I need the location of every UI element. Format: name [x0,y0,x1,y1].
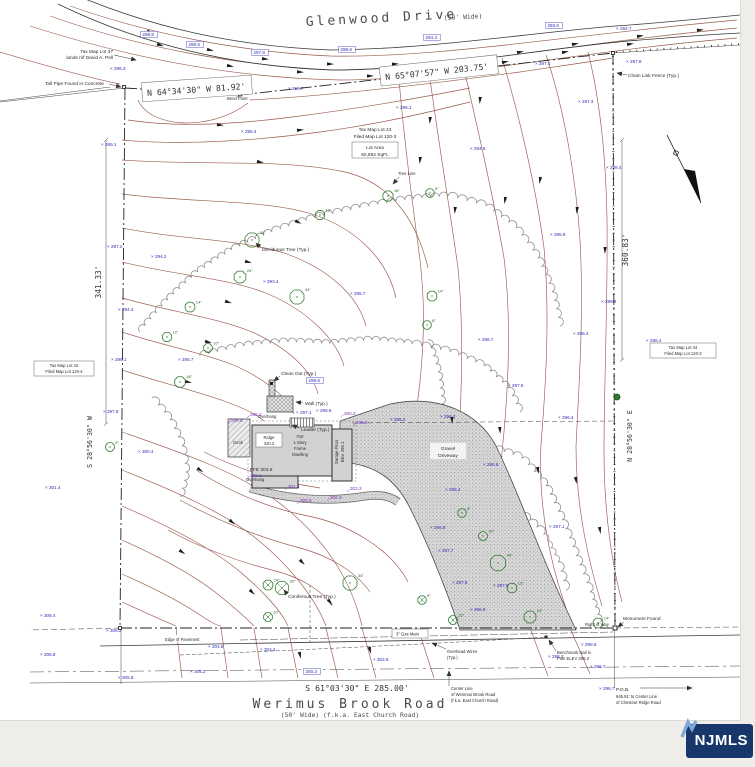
deciduous-tree-symbol: 18" [175,374,193,388]
svg-text:1 Story: 1 Story [293,440,307,445]
page: 298.8298.6297.8298.6294.3293.6× 294.7× 2… [0,0,755,767]
spot-value: × 295.9 [550,232,566,237]
flow-arrow [575,207,579,214]
spot-value: × 297.8 [508,383,524,388]
overhead-wires-label: Overhead Wires (Typ.) [432,643,477,660]
njmls-arrow-icon [678,718,700,740]
spot-value: 297.8 [253,50,265,55]
spot-elevation: 298.6 [187,41,204,47]
spot-elevation: × 296.2 [440,414,456,419]
svg-text:Pole ELEV 305.3: Pole ELEV 305.3 [557,656,590,661]
svg-text:P.O.B.: P.O.B. [616,687,630,693]
grade-value: 295.8 [356,420,368,425]
spot-value: × 297.8 [103,409,119,414]
spot-value: × 299.4 [601,299,617,304]
spot-value: × 306.2 [106,628,122,633]
spot-elevation: × 297.2 [107,244,123,249]
flow-arrow [229,519,237,526]
spot-elevation: × 295.1 [111,357,127,362]
spot-elevation: × 298.6 [581,642,597,647]
property-boundary [0,44,740,688]
grade-spot: 303.3 [347,486,362,492]
svg-text:Tax Map Lot 43: Tax Map Lot 43 [359,127,392,133]
svg-text:645.91' to Center Line: 645.91' to Center Line [616,694,658,699]
spot-value: × 297.1 [535,61,551,66]
spot-elevation: 298.6 [339,46,356,52]
tree-line-path [139,192,564,332]
tree-center [426,324,427,325]
iron-pin-found [614,394,620,400]
tree-size-label: 13" [518,580,524,585]
svg-text:Edge of Pavement: Edge of Pavement [165,637,200,642]
tree-center [296,296,297,297]
tree-line-label: Tree Line [398,171,416,176]
svg-text:of Werimus Brook Road: of Werimus Brook Road [451,692,496,697]
svg-text:S 28°56'30" W: S 28°56'30" W [86,416,94,468]
leader-label: Leader (Typ.) [301,427,330,433]
spot-value: × 302.8 [373,657,389,662]
flow-arrow [185,380,193,385]
contour-flow-arrows [147,28,705,659]
spot-elevation: × 296.1 [396,105,412,110]
lot42-label: Tax Map Lot 42 Filed Map Lot 120-4 [34,361,94,376]
svg-text:of Chestnut Ridge Road: of Chestnut Ridge Road [616,700,661,705]
tree-center [497,562,498,563]
svg-text:360.83': 360.83' [621,234,630,267]
spot-elevation: 294.3 [424,34,441,40]
flow-arrow [298,652,303,660]
flow-arrow [498,427,502,434]
grade-value: 303.3 [350,486,362,491]
spot-elevation: × 297.8 [493,583,509,588]
spot-value: × 296.7 [599,686,615,691]
spot-elevation: × 296.4 [646,338,662,343]
svg-text:341.33': 341.33' [94,266,103,299]
tree-size-label: 14" [196,299,202,304]
lot43-label: Tax Map Lot 43 Filed Map Lot 120-3 Lot A… [352,127,398,158]
deciduous-tree-symbol: 14" [185,299,202,312]
flow-arrow [299,559,306,566]
spot-elevation: × 295.9 [550,232,566,237]
deciduous-label: Deciduous Tree (Typ.) [262,247,310,253]
spot-elevation: × 297.8 [452,580,468,585]
spot-value: 293.6 [547,23,559,28]
tree-center [251,239,252,240]
overhead-wires-line [180,637,546,655]
spot-value: × 296.2 [440,414,456,419]
contour-lines [0,6,737,678]
spot-elevation: × 296.7 [478,337,494,342]
grade-value: 299.8 [231,418,243,423]
flow-arrow [207,48,215,53]
chain-link-label: Chain Link Fence (Typ.) [628,73,679,79]
spot-elevation: × 296.4 [445,487,461,492]
svg-text:Lot Area: Lot Area [366,145,384,151]
coniferous-tree-symbol: 8" [418,593,432,604]
spot-elevation: × 293.4 [263,279,279,284]
tree-center [166,336,167,337]
tree-line-path [200,336,523,412]
deciduous-tree-symbol: 14" [427,288,444,301]
spot-elevation: × 294.6 [470,146,486,151]
survey-drawing: 298.8298.6297.8298.6294.3293.6× 294.7× 2… [0,0,740,720]
gravel-driveway-label: Gravel Driveway [430,443,466,459]
dim-right: 360.83' N 28°56'30" E [620,138,634,462]
spot-value: × 296.4 [558,415,574,420]
flow-arrow [249,589,256,596]
pob-label: P.O.B. 645.91' to Center Line of Chestnu… [616,687,692,705]
svg-text:Elev. 295.1: Elev. 295.1 [340,441,345,462]
spot-elevation: × 294.4 [118,307,134,312]
deciduous-tree-symbol: 9" [106,440,120,451]
grade-value: 302.3 [330,495,342,500]
grade-value: 300.2 [344,411,356,416]
spot-elevation: × 299.4 [601,299,617,304]
flow-arrow [562,50,569,55]
spot-value: × 295.7 [178,357,194,362]
spot-value: × 301.4 [45,485,61,490]
flow-arrow [245,260,253,265]
lot37-label: Tax Map Lot 37 lands n/f David A. Pell [66,49,136,61]
top-road-name: Glenwood Drive [305,7,457,30]
spot-value: × 295.2 [390,417,406,422]
njmls-label: NJMLS [695,732,748,749]
svg-text:(Typ.): (Typ.) [447,655,458,660]
tree-center [461,512,462,513]
spot-value: × 300.4 [138,449,154,454]
coniferous-label: Coniferous Tree (Typ.) [288,594,336,600]
spot-elevation: × 296.8 [316,408,332,413]
svg-text:Center Line: Center Line [451,686,473,691]
spot-value: 298.8 [308,378,320,383]
flow-arrow [297,128,304,132]
tree-size-label: 12" [173,329,179,334]
spot-elevation: × 296.8 [430,525,446,530]
tree-size-label: 24" [537,608,543,613]
walkway [250,488,398,502]
spot-elevations: 298.8298.6297.8298.6294.3293.6× 294.7× 2… [40,22,662,691]
njmls-watermark: NJMLS [686,724,753,758]
bottom-road-name: Werimus Brook Road [253,697,448,712]
monument-found-label: Monument Found [623,616,661,622]
spot-value: × 296.7 [288,86,304,91]
svg-text:3" Gas Main: 3" Gas Main [396,632,420,637]
flow-arrow [225,299,233,304]
utility-pole [544,635,548,639]
gravel-driveway [340,401,576,630]
edge-of-pavement-label: Edge of Pavement [163,635,211,642]
flow-arrow [603,247,607,254]
spot-value: × 298.6 [581,642,597,647]
spot-value: × 298.4 [606,165,622,170]
tree-center [429,192,430,193]
survey-sheet: 298.8298.6297.8298.6294.3293.6× 294.7× 2… [0,0,741,721]
bearing-bottom: S 61°03'30" E 285.00' [305,683,409,693]
tree-size-label: 10" [213,341,219,346]
bottom-road-note: (50' Wide) (f.k.a. East Church Road) [281,711,420,719]
tree-size-label: 34" [260,230,266,235]
spot-elevation: × 297.1 [535,61,551,66]
flow-arrow [295,219,303,225]
tree-size-label: 24" [247,268,253,273]
spot-elevation: × 297.8 [626,59,642,64]
tree-center [387,195,388,196]
spot-value: × 297.1 [296,410,312,415]
flow-arrow [453,207,457,214]
svg-text:92,852 SqFt.: 92,852 SqFt. [361,152,388,158]
tree-size-label: 30" [290,579,296,584]
pipe-found-label: Tall Pipe Found in Concrete [45,81,104,87]
right-of-way-label: Right of Way [585,622,610,627]
tree-center [529,616,530,617]
gas-main-label: 3" Gas Main [392,629,428,638]
svg-text:Ridge: Ridge [264,435,276,440]
monument-marker [613,626,617,630]
flow-arrow [478,97,482,104]
svg-text:Benchmark Nail in: Benchmark Nail in [557,650,592,655]
svg-text:Filed Map Lot 120-3: Filed Map Lot 120-3 [354,134,397,140]
deck [228,419,250,457]
north-arrow [667,135,701,203]
flow-arrow [297,70,304,74]
spot-elevation: × 295.7 [350,291,366,296]
spot-elevation: × 297.1 [296,410,312,415]
spot-value: × 296.4 [646,338,662,343]
tree-size-label: 12" [326,207,332,212]
flow-arrow [637,34,644,38]
spot-value: × 295.7 [350,291,366,296]
spot-value: × 306.8 [40,652,56,657]
spot-value: × 297.3 [578,99,594,104]
spot-value: × 296.8 [483,462,499,467]
svg-text:Garage Floor: Garage Floor [334,439,339,464]
tree-size-label: 14" [438,288,444,293]
spot-elevation: 297.8 [252,49,268,55]
deciduous-tree-symbol: 8" [423,318,437,329]
ffe-label: FFE 303.8 [250,467,273,473]
spot-value: × 293.4 [263,279,279,284]
svg-text:Overhead Wires: Overhead Wires [447,649,477,654]
tree-center [179,381,180,382]
tree-line-path [152,397,190,496]
spot-value: × 299.1 [101,142,117,147]
svg-text:Tax Map Lot 37: Tax Map Lot 37 [80,49,113,55]
flow-arrow [536,467,541,474]
spot-value: × 297.8 [626,59,642,64]
flow-arrow [179,549,187,556]
spot-value: × 305.8 [118,675,134,680]
spot-value: × 306.4 [40,613,56,618]
coniferous-tree-symbol: 10" [264,610,280,622]
grade-spot: 301.4 [285,484,300,490]
spot-value: × 297.8 [452,580,468,585]
tree-size-label: 10" [488,529,494,534]
tree-center [431,295,432,296]
spot-value: × 294.6 [470,146,486,151]
spot-elevation: × 295.4 [241,129,257,134]
deciduous-tree-symbol: 24" [234,268,253,283]
spot-value: × 296.1 [396,105,412,110]
tree-size-label: 10" [458,613,464,618]
flow-arrow [367,74,374,78]
spot-value: 298.8 [142,32,154,37]
spot-elevation: 298.8 [307,377,324,383]
tree-size-label: 8" [427,593,431,598]
spot-elevation: × 297.8 [508,383,524,388]
svg-text:Frame: Frame [294,446,307,451]
spot-value: 298.6 [340,47,352,52]
spot-elevation: × 300.4 [138,449,154,454]
deck-label: Deck [233,440,243,445]
bearing-top-right: N 65°07'57" W 203.75' [379,55,498,86]
tree-size-label: 10" [273,610,279,615]
spot-value: × 297.1 [549,524,565,529]
spot-value: × 304.4 [260,647,276,652]
tree-center [239,276,240,277]
grade-value: 301.4 [288,484,300,489]
spot-value: × 296.3 [110,66,126,71]
tree-size-label: 8" [467,506,471,511]
spot-elevation: × 297.7 [438,548,454,553]
spot-value: × 296.8 [430,525,446,530]
spot-elevation: × 296.7 [288,86,304,91]
svg-text:Tax Map Lot 44: Tax Map Lot 44 [669,345,698,350]
spot-elevation: × 295.7 [178,357,194,362]
centerline-label: Center Line of Werimus Brook Road (f.k.a… [449,671,499,703]
spot-value: × 296.4 [573,331,589,336]
spot-elevation: × 304.4 [260,647,276,652]
spot-value: × 295.4 [241,129,257,134]
tree-center [482,535,483,536]
wall-label: Wall (Typ.) [305,401,328,407]
tree-size-label: 8" [435,186,439,191]
spot-elevation: × 294.2 [151,254,167,259]
svg-text:Filed Map Lot 120-2: Filed Map Lot 120-2 [664,351,702,356]
tree-center [319,214,320,215]
spot-elevation: × 296.3 [110,66,126,71]
spot-elevation: × 305.2 [190,669,206,674]
spot-elevation: × 301.4 [45,485,61,490]
spot-value: × 296.7 [590,664,606,669]
spot-value: × 297.7 [438,548,454,553]
svg-text:Dwelling: Dwelling [292,452,308,457]
svg-text:320.2: 320.2 [264,441,275,446]
tree-center [511,587,512,588]
pipe-corner-marker [123,86,126,89]
deciduous-tree-symbol: 12" [315,207,332,219]
tree-center [109,446,110,447]
svg-text:N 28°56'30" E: N 28°56'30" E [626,410,634,462]
spot-value: 298.6 [188,42,200,47]
deciduous-tree-symbol: 16" [383,188,401,201]
spot-elevation: × 297.1 [549,524,565,529]
spot-value: × 296.7 [478,337,494,342]
spot-value: × 294.2 [151,254,167,259]
spot-value: × 305.2 [190,669,206,674]
tree-center [207,347,208,348]
spot-elevation: × 296.7 [590,664,606,669]
dim-left: 341.33' S 28°56'30" W [86,138,108,468]
spot-elevation: × 294.7 [616,26,632,31]
spot-value: 294.3 [425,35,437,40]
spot-value: × 294.4 [118,307,134,312]
ne-corner-marker [612,52,615,55]
flow-arrow [572,42,579,47]
tree-size-label: 14" [604,615,610,620]
spot-elevation: × 295.2 [390,417,406,422]
spot-value: × 296.4 [445,487,461,492]
spot-elevation: 300.3 [304,668,321,674]
road-centerline [30,666,740,672]
lot44-label: Tax Map Lot 44 Filed Map Lot 120-2 [650,343,716,358]
spot-elevation: × 297.8 [103,409,119,414]
deciduous-tree-symbol: 12" [162,329,179,341]
tree-size-label: 9" [115,440,119,445]
spot-value: × 297.8 [493,583,509,588]
top-road-note: (50' Wide) [444,12,483,22]
spot-elevation: × 296.7 [599,686,615,691]
flow-arrow [227,64,234,69]
svg-text:Tax Map Lot 42: Tax Map Lot 42 [50,363,79,368]
spot-elevation: × 306.4 [40,613,56,618]
flow-arrow [262,57,269,61]
garage-label: Garage Floor Elev. 295.1 [334,439,345,464]
spot-elevation: 293.6 [546,22,563,28]
spot-elevation: × 296.8 [483,462,499,467]
grade-value: 300.8 [300,498,312,503]
flow-arrow [327,62,334,66]
spot-value: × 296.8 [470,607,486,612]
flow-arrow [428,117,432,124]
flow-arrow [627,42,634,46]
clean-out-symbol [270,382,273,385]
spot-value: × 294.7 [616,26,632,31]
spot-elevation: × 306.2 [106,628,122,633]
spot-elevation: × 296.4 [558,415,574,420]
flow-arrow [598,527,603,534]
spot-elevation: × 302.8 [373,657,389,662]
svg-text:Filed Map Lot 120-4: Filed Map Lot 120-4 [45,369,83,374]
svg-text:(f.k.a. East Church Road): (f.k.a. East Church Road) [451,698,499,703]
spot-value: × 304.8 [208,644,224,649]
spot-elevation: × 296.8 [470,607,486,612]
svg-text:Gravel: Gravel [441,446,455,452]
flow-arrow [503,197,508,204]
svg-text:#10: #10 [297,434,305,439]
ridge-label: Ridge 320.2 [256,433,282,447]
overhang-label-1: Overhang [258,414,277,419]
svg-text:lands n/f David A. Pell: lands n/f David A. Pell [66,55,113,61]
spot-elevation: 298.8 [141,31,158,37]
deciduous-tree-symbol: 8" [426,186,440,197]
flow-arrow [538,177,543,184]
tree-size-label: 40" [507,552,513,557]
spot-value: 300.3 [305,669,317,674]
spot-elevation: × 298.4 [606,165,622,170]
overhang-label-2: Overhang [246,477,265,482]
svg-text:Driveway: Driveway [438,453,458,459]
tree-size-label: 34" [305,287,311,292]
spot-elevation: × 296.4 [573,331,589,336]
flow-arrow [418,157,422,164]
tree-size-label: 8" [432,318,436,323]
tree-center [349,582,350,583]
spot-elevation: × 306.8 [40,652,56,657]
spot-elevation: × 297.3 [578,99,594,104]
tree-size-label: 16" [394,188,400,193]
tree-size-label: 18" [186,374,192,379]
tree-size-label: 34" [358,573,364,578]
